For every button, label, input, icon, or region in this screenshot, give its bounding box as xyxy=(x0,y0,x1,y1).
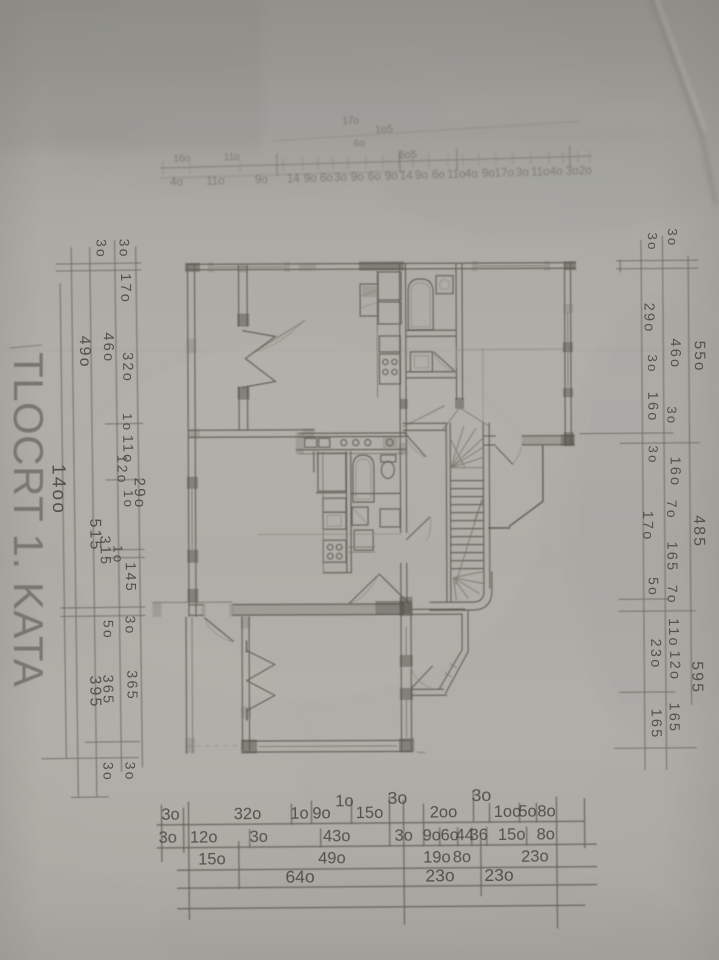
svg-text:3o: 3o xyxy=(387,788,407,808)
svg-text:3o: 3o xyxy=(664,406,679,425)
svg-text:1o: 1o xyxy=(120,413,135,432)
svg-text:4o: 4o xyxy=(465,168,478,180)
svg-text:3o: 3o xyxy=(249,828,268,846)
svg-text:9o: 9o xyxy=(482,168,495,180)
svg-text:11o: 11o xyxy=(224,152,241,163)
svg-text:3o: 3o xyxy=(645,354,660,373)
svg-text:12o: 12o xyxy=(190,828,218,846)
svg-text:365: 365 xyxy=(123,670,139,701)
svg-text:6o: 6o xyxy=(353,137,365,149)
svg-text:9o: 9o xyxy=(385,170,398,182)
svg-text:9o: 9o xyxy=(351,171,364,183)
svg-text:6o: 6o xyxy=(368,171,381,183)
svg-text:595: 595 xyxy=(688,661,705,694)
svg-text:9o: 9o xyxy=(304,173,317,185)
svg-text:6o: 6o xyxy=(432,169,445,181)
svg-text:9o: 9o xyxy=(312,804,331,822)
svg-text:9o: 9o xyxy=(255,174,268,186)
svg-text:165: 165 xyxy=(663,541,679,572)
svg-text:145: 145 xyxy=(122,562,138,593)
svg-text:8o: 8o xyxy=(536,825,555,843)
svg-text:1o5: 1o5 xyxy=(375,124,394,137)
svg-text:3o: 3o xyxy=(471,785,491,805)
svg-text:29o: 29o xyxy=(131,477,148,509)
svg-text:15o: 15o xyxy=(198,850,226,868)
svg-text:15o: 15o xyxy=(356,804,384,822)
svg-text:36: 36 xyxy=(469,826,488,844)
svg-text:19o: 19o xyxy=(423,848,451,866)
svg-text:9o: 9o xyxy=(415,170,428,182)
svg-text:1o: 1o xyxy=(290,805,309,823)
svg-text:17o: 17o xyxy=(342,115,359,126)
svg-text:23o: 23o xyxy=(425,865,454,885)
svg-text:3o: 3o xyxy=(334,172,347,184)
svg-text:29o: 29o xyxy=(640,303,656,334)
svg-text:11o: 11o xyxy=(206,175,225,188)
svg-text:3o: 3o xyxy=(665,228,680,247)
svg-text:12o: 12o xyxy=(114,455,130,485)
svg-text:8o: 8o xyxy=(453,848,472,866)
svg-text:9o: 9o xyxy=(422,826,441,844)
svg-text:5o: 5o xyxy=(518,803,537,821)
svg-text:4o: 4o xyxy=(550,166,563,178)
svg-text:3o: 3o xyxy=(94,239,110,259)
svg-text:3o: 3o xyxy=(645,232,660,251)
svg-text:315: 315 xyxy=(96,535,112,566)
svg-text:3o: 3o xyxy=(394,827,413,845)
svg-text:23o: 23o xyxy=(521,848,549,866)
svg-text:3o: 3o xyxy=(158,829,177,847)
svg-text:17o: 17o xyxy=(639,511,655,542)
svg-text:485: 485 xyxy=(690,515,707,548)
svg-text:17o: 17o xyxy=(117,273,133,304)
svg-text:6o: 6o xyxy=(320,172,333,184)
svg-text:16o: 16o xyxy=(173,153,190,164)
svg-text:46o: 46o xyxy=(100,332,116,363)
svg-text:4o: 4o xyxy=(170,176,183,188)
svg-text:11o: 11o xyxy=(531,166,550,179)
svg-text:3o: 3o xyxy=(161,806,180,824)
svg-text:8o: 8o xyxy=(537,802,556,820)
svg-text:43o: 43o xyxy=(323,827,351,845)
svg-text:3o: 3o xyxy=(122,616,138,636)
svg-text:5o: 5o xyxy=(101,620,117,640)
svg-text:32o: 32o xyxy=(234,805,262,823)
svg-text:3o: 3o xyxy=(122,762,138,782)
svg-text:2oo: 2oo xyxy=(430,803,458,821)
svg-text:395: 395 xyxy=(86,676,103,709)
svg-text:16o: 16o xyxy=(667,456,683,487)
svg-text:3o: 3o xyxy=(117,239,133,259)
svg-text:32o: 32o xyxy=(119,352,135,383)
svg-text:6o5: 6o5 xyxy=(398,149,417,162)
svg-text:17o: 17o xyxy=(495,167,515,180)
svg-text:3o: 3o xyxy=(646,445,661,464)
svg-text:64o: 64o xyxy=(285,867,314,887)
svg-text:11o: 11o xyxy=(447,169,466,182)
svg-text:165: 165 xyxy=(648,709,664,740)
svg-text:5o: 5o xyxy=(646,577,662,597)
svg-text:14: 14 xyxy=(400,170,414,182)
svg-text:49o: 49o xyxy=(318,849,346,867)
svg-text:55o: 55o xyxy=(691,341,708,373)
svg-text:11o: 11o xyxy=(665,618,681,648)
svg-text:46o: 46o xyxy=(667,338,683,369)
svg-text:23o: 23o xyxy=(647,639,663,670)
svg-text:1o: 1o xyxy=(335,792,354,810)
svg-text:1oo: 1oo xyxy=(494,803,522,821)
svg-text:12o: 12o xyxy=(666,650,682,681)
svg-text:49o: 49o xyxy=(76,336,93,369)
svg-text:2o: 2o xyxy=(579,165,592,177)
svg-text:7o: 7o xyxy=(665,585,681,605)
svg-text:TLOCRT 1. KATA: TLOCRT 1. KATA xyxy=(5,352,52,687)
svg-text:15o: 15o xyxy=(498,826,526,844)
svg-text:165: 165 xyxy=(666,702,682,733)
svg-text:3o: 3o xyxy=(100,762,116,782)
svg-text:16o: 16o xyxy=(644,392,660,423)
svg-text:23o: 23o xyxy=(484,865,513,885)
svg-text:7o: 7o xyxy=(664,500,680,520)
svg-text:3o: 3o xyxy=(566,165,579,177)
svg-text:3o: 3o xyxy=(516,167,529,179)
svg-text:14: 14 xyxy=(287,173,301,185)
